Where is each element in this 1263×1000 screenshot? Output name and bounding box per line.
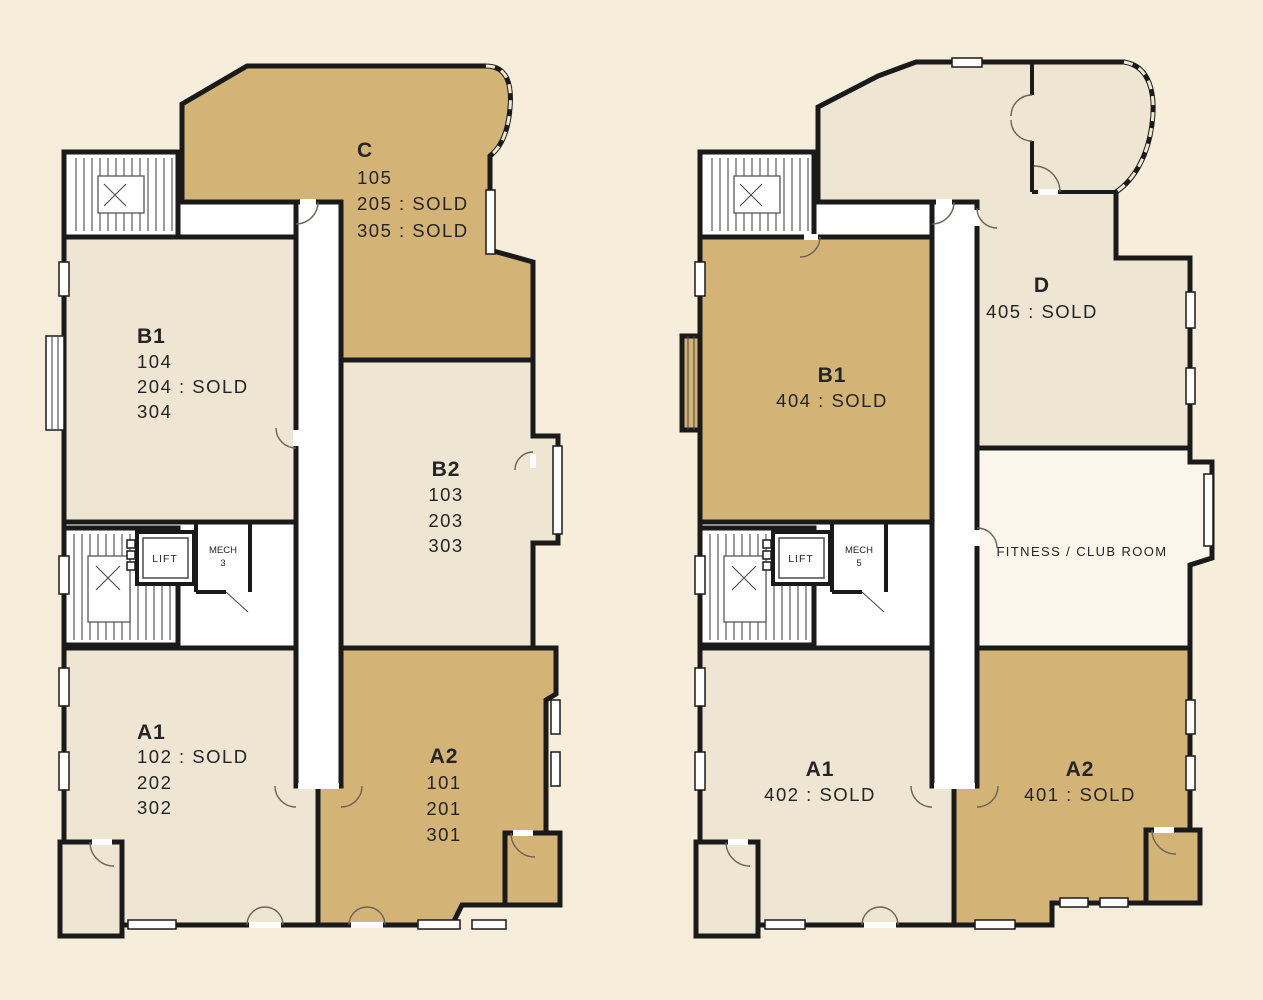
unit-line: 103	[428, 484, 463, 505]
unit-name: C	[357, 139, 373, 162]
unit-line: 305 : SOLD	[357, 220, 469, 241]
floor-plans-canvas: LIFT MECH 3	[0, 0, 1263, 1000]
unit-line: 102 : SOLD	[137, 746, 249, 767]
corridor	[932, 202, 977, 786]
stair-landing	[88, 556, 130, 622]
unit-line: 201	[426, 798, 461, 819]
unit-line: 203	[428, 510, 463, 531]
stair-landing	[98, 176, 144, 213]
corridor	[296, 202, 341, 786]
unit-line: 401 : SOLD	[1024, 784, 1136, 805]
unit-line: 404 : SOLD	[776, 390, 888, 411]
porch	[696, 842, 758, 936]
unit-line: 402 : SOLD	[764, 784, 876, 805]
unit-name: A1	[137, 721, 166, 744]
fitness-label: FITNESS / CLUB ROOM	[996, 544, 1167, 559]
mech-label: MECH	[845, 545, 873, 556]
stair-landing	[734, 176, 780, 213]
mech-number: 5	[856, 558, 861, 569]
unit-name: B2	[432, 458, 461, 481]
unit-line: 301	[426, 824, 461, 845]
unit-name: B1	[818, 364, 847, 387]
unit-line: 303	[428, 535, 463, 556]
unit-name: D	[1034, 274, 1050, 297]
unit-line: 304	[137, 401, 172, 422]
unit-line: 205 : SOLD	[357, 193, 469, 214]
unit-name: A2	[1066, 758, 1095, 781]
unit-name: B1	[137, 325, 166, 348]
lift-label: LIFT	[152, 553, 178, 565]
unit-line: 405 : SOLD	[986, 301, 1098, 322]
unit-line: 302	[137, 797, 172, 818]
unit-line: 101	[426, 772, 461, 793]
unit-line: 104	[137, 351, 172, 372]
unit-name: A1	[806, 758, 835, 781]
unit-line: 202	[137, 772, 172, 793]
mech-number: 3	[220, 558, 225, 569]
unit-line: 204 : SOLD	[137, 376, 249, 397]
stair-landing	[724, 556, 766, 622]
lift-label: LIFT	[788, 553, 814, 565]
call-buttons-icon	[127, 540, 135, 570]
unit-name: A2	[430, 745, 459, 768]
porch	[60, 842, 122, 936]
floor-plan-left: LIFT MECH 3	[46, 66, 562, 936]
mech-label: MECH	[209, 545, 237, 556]
unit-line: 105	[357, 167, 392, 188]
unit-b1[interactable]	[700, 237, 932, 522]
call-buttons-icon	[763, 540, 771, 570]
